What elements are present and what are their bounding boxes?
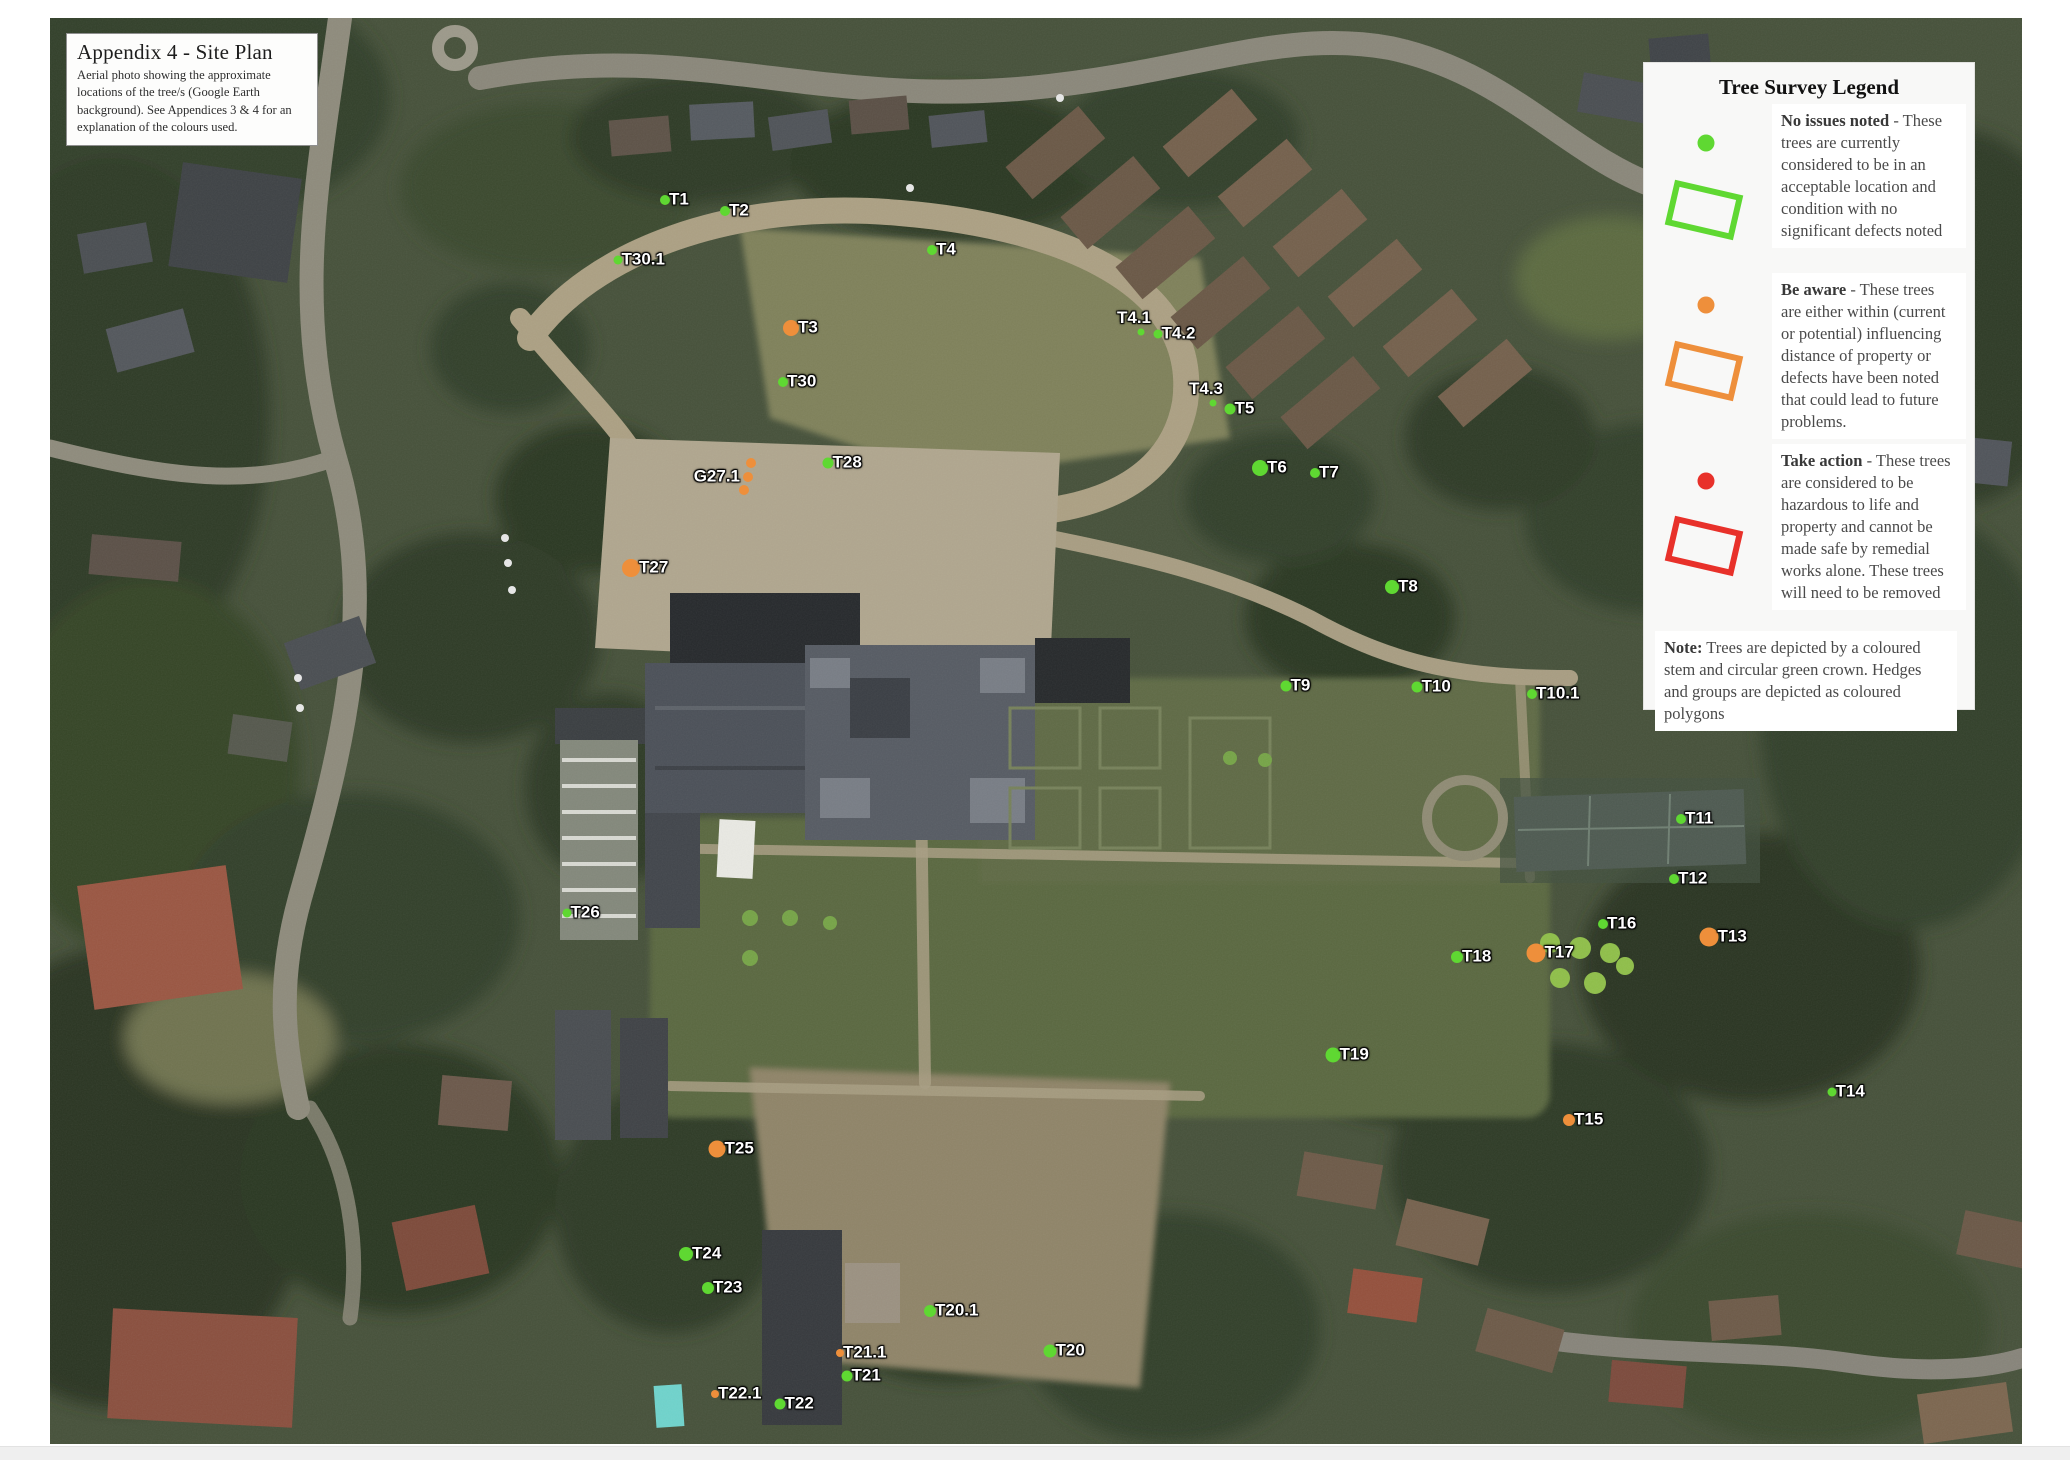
legend-lead: No issues noted xyxy=(1781,111,1889,130)
legend-note-lead: Note: xyxy=(1664,638,1702,657)
red-dot-icon xyxy=(1698,473,1715,490)
legend-body: - These trees are either within (current… xyxy=(1781,280,1945,431)
title-description: Aerial photo showing the approximate loc… xyxy=(77,67,307,137)
legend-body: - These trees are currently considered t… xyxy=(1781,111,1942,240)
site-plan-page: T1T2T30.1T4T3T4.1T4.2T30T4.3T5T28G27.1T6… xyxy=(0,0,2070,1460)
page-title: Appendix 4 - Site Plan xyxy=(77,40,307,65)
legend-lead: Take action xyxy=(1781,451,1862,470)
orange-polygon-icon xyxy=(1665,341,1744,402)
title-box: Appendix 4 - Site Plan Aerial photo show… xyxy=(66,33,318,146)
legend-lead: Be aware xyxy=(1781,280,1846,299)
red-polygon-icon xyxy=(1665,516,1744,577)
legend-box: Tree Survey Legend No issues noted - The… xyxy=(1643,62,1975,710)
orange-dot-icon xyxy=(1698,297,1715,314)
green-dot-icon xyxy=(1698,135,1715,152)
legend-title: Tree Survey Legend xyxy=(1644,75,1974,100)
legend-text-no-issues: No issues noted - These trees are curren… xyxy=(1772,104,1966,248)
green-polygon-icon xyxy=(1665,180,1744,241)
legend-text-be-aware: Be aware - These trees are either within… xyxy=(1772,273,1966,439)
legend-note: Note: Trees are depicted by a coloured s… xyxy=(1655,631,1957,731)
legend-text-take-action: Take action - These trees are considered… xyxy=(1772,444,1966,610)
bottom-scroll-strip xyxy=(0,1446,2070,1460)
legend-body: - These trees are considered to be hazar… xyxy=(1781,451,1951,602)
legend-note-body: Trees are depicted by a coloured stem an… xyxy=(1664,638,1921,723)
